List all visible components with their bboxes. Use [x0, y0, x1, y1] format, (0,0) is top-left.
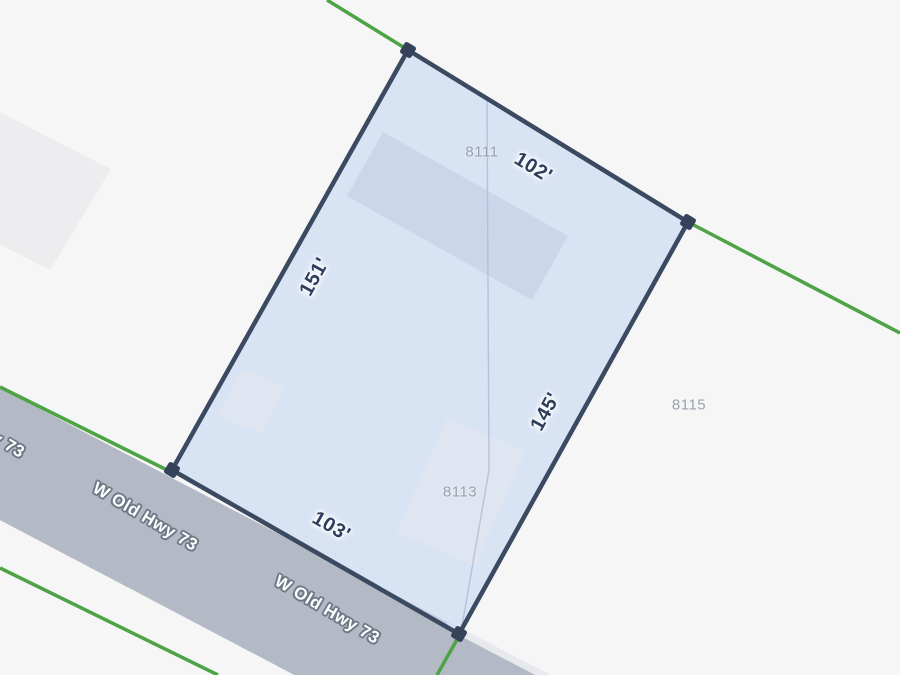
map-layers: [0, 0, 900, 675]
map-canvas[interactable]: 8111 8113 8115 102' 151' 145' 103' W Old…: [0, 0, 900, 675]
property-line-north: [327, 0, 408, 50]
property-line-east: [688, 222, 900, 333]
neighbor-parcel-shape: [0, 66, 111, 270]
